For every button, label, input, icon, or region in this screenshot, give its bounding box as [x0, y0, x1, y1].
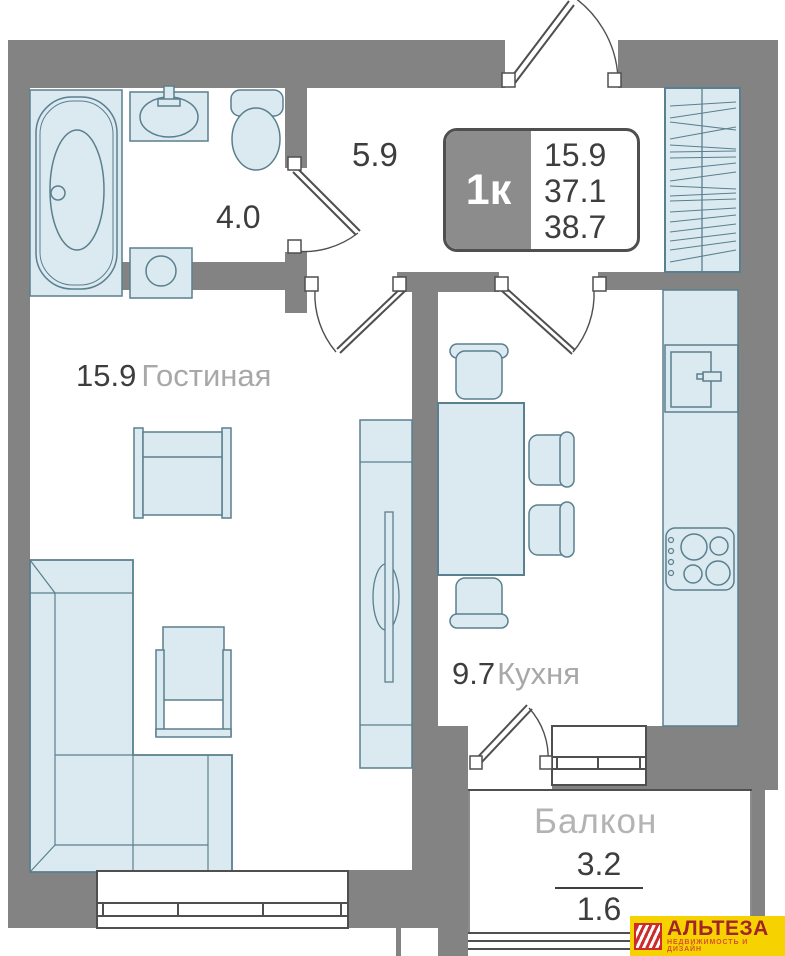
tv-stand-icon — [360, 420, 412, 768]
entrance-door-icon — [502, 0, 621, 87]
kitchen-door-icon — [495, 277, 606, 354]
living-room-door-icon — [305, 277, 406, 353]
kitchen-name: Кухня — [497, 656, 580, 691]
living-room-area: 15.9 — [76, 358, 136, 393]
desk-icon — [134, 428, 231, 518]
bathroom-area-label: 4.0 — [216, 199, 260, 236]
balcony-area-total: 3.2 — [555, 846, 643, 889]
kitchen-counter-icon — [663, 290, 738, 726]
armchair-icon — [156, 627, 231, 737]
unit-total-area: 38.7 — [544, 209, 637, 245]
unit-info-badge: 1к 15.9 37.1 38.7 — [443, 128, 640, 252]
stove-icon — [666, 528, 734, 590]
washing-machine-icon — [130, 248, 192, 298]
floor-plan: 5.9 4.0 15.9Гостиная 9.7Кухня Балкон 3.2… — [0, 0, 785, 956]
kitchen-area: 9.7 — [452, 656, 495, 691]
unit-living-area: 15.9 — [544, 137, 637, 173]
living-room-name: Гостиная — [141, 358, 271, 393]
unit-areas: 15.9 37.1 38.7 — [531, 131, 637, 249]
living-room-window-icon — [97, 871, 348, 928]
developer-logo: АЛЬТЕЗА НЕДВИЖИМОСТЬ И ДИЗАЙН — [630, 916, 785, 956]
wardrobe-icon — [665, 88, 740, 272]
bathtub-icon — [30, 90, 122, 296]
logo-text: АЛЬТЕЗА НЕДВИЖИМОСТЬ И ДИЗАЙН — [667, 919, 781, 953]
balcony-name-label: Балкон — [534, 802, 657, 842]
kitchen-window-icon — [552, 726, 646, 785]
logo-tagline: НЕДВИЖИМОСТЬ И ДИЗАЙН — [667, 939, 781, 953]
kitchen-label: 9.7Кухня — [452, 656, 580, 692]
toilet-icon — [231, 90, 283, 170]
living-room-label: 15.9Гостиная — [76, 358, 271, 394]
alteza-logo-icon — [634, 923, 662, 950]
sofa-icon — [30, 560, 232, 872]
unit-apartment-area: 37.1 — [544, 173, 637, 209]
hallway-area-label: 5.9 — [352, 136, 398, 174]
logo-title: АЛЬТЕЗА — [667, 919, 769, 939]
bathroom-door-icon — [288, 157, 360, 253]
sink-icon — [130, 86, 208, 141]
dining-table-icon — [438, 403, 524, 575]
unit-type-badge: 1к — [446, 131, 531, 249]
